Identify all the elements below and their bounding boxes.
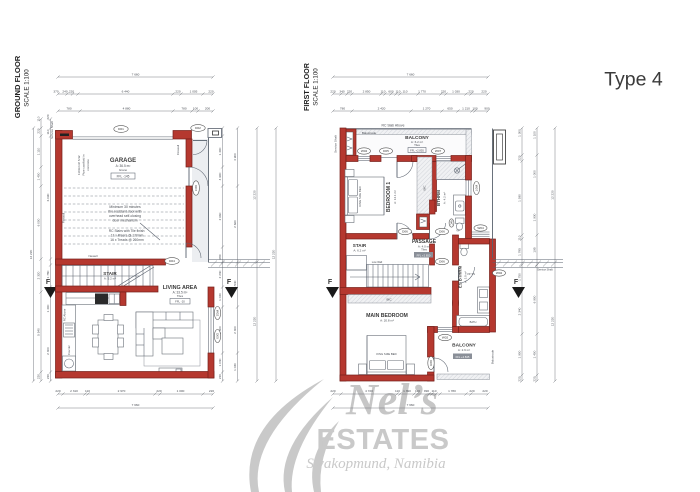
svg-text:1 110: 1 110 [37, 147, 41, 155]
svg-text:1 030: 1 030 [452, 89, 460, 93]
svg-text:RC Stairs with Tile finish:: RC Stairs with Tile finish: [109, 229, 146, 233]
svg-text:780: 780 [181, 106, 186, 110]
svg-text:110: 110 [85, 389, 90, 393]
svg-text:220: 220 [481, 89, 486, 93]
svg-text:door mechanism: door mechanism [112, 219, 137, 223]
svg-text:220: 220 [175, 89, 180, 93]
svg-text:Swakopmund, Namibia: Swakopmund, Namibia [306, 456, 445, 472]
svg-text:110: 110 [432, 389, 437, 393]
svg-text:220: 220 [468, 89, 473, 93]
svg-text:SCALE 1:100: SCALE 1:100 [24, 69, 31, 107]
svg-text:2 420: 2 420 [378, 106, 386, 110]
svg-text:2 400: 2 400 [46, 347, 50, 355]
svg-text:1 030: 1 030 [218, 358, 222, 366]
svg-text:fire resistant door with: fire resistant door with [108, 210, 141, 214]
svg-text:220: 220 [218, 374, 222, 379]
svg-text:340: 340 [339, 89, 344, 93]
svg-text:Low Wall: Low Wall [372, 260, 383, 264]
svg-text:D05: D05 [383, 149, 389, 153]
svg-text:BEDROOM 1: BEDROOM 1 [386, 182, 392, 213]
svg-text:110mm Ø S.W.: 110mm Ø S.W. [77, 155, 81, 175]
svg-text:D08: D08 [429, 360, 433, 366]
svg-text:WC: WC [449, 220, 453, 226]
svg-text:240: 240 [62, 89, 67, 93]
svg-text:D02: D02 [195, 126, 201, 130]
svg-text:1 400: 1 400 [37, 172, 41, 180]
svg-text:220: 220 [55, 389, 60, 393]
svg-text:Firewall: Firewall [176, 145, 180, 156]
svg-text:D05: D05 [215, 333, 219, 339]
svg-text:Balustrade: Balustrade [491, 349, 495, 364]
svg-text:BIC: BIC [386, 298, 392, 302]
svg-text:1 210: 1 210 [462, 106, 470, 110]
svg-text:2 340: 2 340 [518, 307, 522, 315]
svg-text:680: 680 [218, 254, 222, 259]
svg-text:1 400: 1 400 [46, 304, 50, 312]
svg-text:F: F [328, 279, 333, 286]
svg-text:12 220: 12 220 [551, 190, 555, 200]
svg-text:STAIR: STAIR [103, 271, 117, 276]
svg-text:1 930: 1 930 [518, 194, 522, 202]
svg-text:220: 220 [37, 374, 41, 379]
svg-text:D04: D04 [169, 259, 175, 263]
svg-text:RC Above: RC Above [63, 308, 67, 321]
svg-text:1 400: 1 400 [218, 147, 222, 155]
svg-text:110: 110 [518, 235, 522, 240]
svg-text:220: 220 [347, 89, 352, 93]
svg-text:D06: D06 [439, 260, 445, 264]
svg-text:100: 100 [193, 106, 198, 110]
svg-text:1 300: 1 300 [518, 129, 522, 137]
svg-text:VP. SS: VP. SS [467, 272, 475, 276]
svg-text:220: 220 [482, 389, 487, 393]
svg-text:16 x Treads @ 260mm: 16 x Treads @ 260mm [110, 238, 144, 242]
svg-text:overhead self-closing: overhead self-closing [109, 214, 141, 218]
svg-text:Counter: Counter [67, 345, 71, 355]
svg-text:F: F [46, 279, 51, 286]
svg-text:7 660: 7 660 [132, 403, 140, 407]
svg-text:110: 110 [415, 389, 420, 393]
svg-text:FFL -145: FFL -145 [117, 175, 130, 179]
svg-text:FFL +2.855: FFL +2.855 [410, 148, 424, 152]
svg-text:220: 220 [69, 89, 74, 93]
svg-text:220: 220 [37, 128, 41, 133]
svg-text:780: 780 [340, 106, 345, 110]
svg-text:Service Shaft: Service Shaft [50, 121, 54, 139]
svg-text:A: 14.1 m²: A: 14.1 m² [393, 190, 397, 204]
svg-text:Tiles: Tiles [421, 248, 427, 252]
svg-text:12 220: 12 220 [29, 249, 33, 259]
svg-text:A: 5.2 m²: A: 5.2 m² [104, 277, 116, 281]
svg-text:220: 220 [441, 89, 446, 93]
svg-text:12 220: 12 220 [253, 190, 257, 200]
svg-text:990: 990 [424, 389, 429, 393]
svg-text:concrete: concrete [86, 159, 90, 171]
svg-text:1 780: 1 780 [46, 270, 50, 278]
svg-text:110: 110 [381, 89, 386, 93]
svg-text:D06: D06 [439, 230, 445, 234]
svg-text:900: 900 [484, 106, 489, 110]
svg-text:110: 110 [396, 89, 401, 93]
svg-text:1 270: 1 270 [423, 106, 431, 110]
svg-text:1 770: 1 770 [418, 89, 426, 93]
svg-text:W07: W07 [435, 149, 442, 153]
svg-text:1 750: 1 750 [518, 273, 522, 281]
svg-text:12 220: 12 220 [272, 249, 276, 259]
svg-text:110: 110 [37, 116, 41, 121]
svg-text:110: 110 [395, 389, 400, 393]
svg-text:7 660: 7 660 [407, 72, 415, 76]
svg-text:D03: D03 [194, 185, 198, 191]
svg-text:D06: D06 [402, 230, 408, 234]
svg-text:A: 20.8 m²: A: 20.8 m² [380, 319, 394, 323]
svg-text:F: F [514, 279, 519, 286]
svg-text:1 000: 1 000 [533, 170, 537, 178]
svg-text:KING SIZE BED: KING SIZE BED [358, 186, 362, 206]
svg-text:1 040: 1 040 [218, 293, 222, 301]
svg-text:4 900: 4 900 [233, 153, 237, 161]
svg-text:1 785: 1 785 [518, 248, 522, 256]
svg-text:FFL +2.845: FFL +2.845 [456, 355, 470, 359]
svg-text:FIRST FLOOR: FIRST FLOOR [302, 62, 311, 111]
svg-text:220: 220 [330, 89, 335, 93]
svg-text:7 660: 7 660 [407, 403, 415, 407]
svg-text:2 320: 2 320 [37, 271, 41, 279]
svg-text:2 970: 2 970 [118, 389, 126, 393]
svg-text:W04: W04 [477, 226, 484, 230]
svg-text:1 390: 1 390 [403, 389, 411, 393]
svg-text:1 100: 1 100 [533, 131, 537, 139]
svg-text:Service Shaft: Service Shaft [537, 268, 553, 272]
svg-text:220: 220 [209, 389, 214, 393]
svg-text:FFL +2.850: FFL +2.850 [417, 253, 431, 257]
svg-text:1 005: 1 005 [190, 89, 198, 93]
svg-text:220: 220 [46, 114, 50, 119]
svg-text:2 660: 2 660 [218, 212, 222, 220]
svg-text:2 230: 2 230 [218, 270, 222, 278]
svg-text:2 310: 2 310 [70, 389, 78, 393]
svg-text:STAIR: STAIR [353, 243, 367, 248]
svg-text:A: 6.2 m²: A: 6.2 m² [353, 249, 365, 253]
svg-text:BTHRM: BTHRM [436, 190, 441, 206]
svg-text:W02: W02 [442, 336, 449, 340]
svg-text:4 900: 4 900 [218, 172, 222, 180]
svg-text:1 000: 1 000 [177, 389, 185, 393]
svg-text:Tiles: Tiles [414, 143, 420, 147]
svg-text:BATH: BATH [470, 320, 477, 324]
svg-text:780: 780 [66, 106, 71, 110]
svg-text:6 090: 6 090 [46, 193, 50, 201]
svg-text:KING SIZE BED: KING SIZE BED [376, 352, 396, 356]
svg-text:6 900: 6 900 [533, 295, 537, 303]
svg-text:600: 600 [388, 89, 393, 93]
svg-text:D01: D01 [118, 127, 124, 131]
svg-text:A: 4.2 m²: A: 4.2 m² [443, 192, 447, 204]
svg-text:220: 220 [533, 376, 537, 381]
svg-text:Minimum 30 minutes: Minimum 30 minutes [109, 205, 141, 209]
svg-text:Service Shaft: Service Shaft [334, 135, 338, 153]
svg-text:Grano: Grano [119, 168, 128, 172]
svg-text:4 880: 4 880 [123, 106, 131, 110]
svg-text:1 930: 1 930 [533, 213, 537, 221]
svg-text:W02: W02 [361, 149, 368, 153]
svg-text:220: 220 [156, 389, 161, 393]
svg-text:A: 2.9 m²: A: 2.9 m² [458, 348, 470, 352]
svg-text:Tiles: Tiles [177, 294, 184, 298]
svg-text:7 660: 7 660 [132, 72, 140, 76]
svg-text:220: 220 [518, 376, 522, 381]
svg-text:6 440: 6 440 [122, 89, 130, 93]
svg-text:1 030: 1 030 [233, 363, 237, 371]
svg-text:650: 650 [447, 106, 452, 110]
svg-text:Balustrade: Balustrade [362, 131, 377, 135]
svg-text:17 x Risers @ 170mm: 17 x Risers @ 170mm [111, 234, 144, 238]
svg-text:12 220: 12 220 [551, 316, 555, 326]
svg-text:VP: VP [456, 229, 460, 233]
svg-text:220: 220 [518, 155, 522, 160]
svg-text:BIC: BIC [423, 185, 427, 191]
svg-text:110: 110 [403, 89, 408, 93]
svg-text:1 900: 1 900 [518, 350, 522, 358]
svg-text:W02: W02 [215, 310, 219, 317]
svg-text:Nel’s: Nel’s [345, 375, 438, 424]
svg-text:220: 220 [46, 374, 50, 379]
svg-text:100: 100 [472, 106, 477, 110]
svg-text:F: F [227, 279, 232, 286]
svg-text:Pipe cast/laid in: Pipe cast/laid in [82, 154, 86, 175]
svg-text:ES BTHRM: ES BTHRM [458, 266, 463, 288]
svg-text:370: 370 [53, 89, 58, 93]
svg-text:2 850: 2 850 [363, 89, 371, 93]
svg-text:2 660: 2 660 [233, 220, 237, 228]
svg-text:W02: W02 [496, 271, 503, 275]
svg-text:220: 220 [330, 389, 335, 393]
svg-text:2 400: 2 400 [233, 326, 237, 334]
svg-text:220: 220 [208, 89, 213, 93]
svg-text:Newell: Newell [88, 254, 97, 258]
svg-text:1 780: 1 780 [448, 389, 456, 393]
svg-text:5 540: 5 540 [37, 328, 41, 336]
svg-text:6 000: 6 000 [37, 218, 41, 226]
svg-text:1 400: 1 400 [533, 350, 537, 358]
svg-text:4 720: 4 720 [365, 389, 373, 393]
svg-text:12 220: 12 220 [253, 316, 257, 326]
svg-text:W07: W07 [474, 185, 478, 192]
svg-text:ESTATES: ESTATES [317, 424, 450, 456]
svg-text:RC Slab Above: RC Slab Above [382, 124, 405, 128]
svg-text:195: 195 [533, 247, 537, 252]
svg-text:SCALE 1:100: SCALE 1:100 [313, 68, 320, 106]
svg-text:FFL -20: FFL -20 [175, 300, 185, 304]
svg-text:GROUND FLOOR: GROUND FLOOR [13, 55, 22, 118]
svg-text:200: 200 [205, 106, 210, 110]
svg-text:220: 220 [469, 389, 474, 393]
svg-text:Type 4: Type 4 [604, 69, 663, 91]
